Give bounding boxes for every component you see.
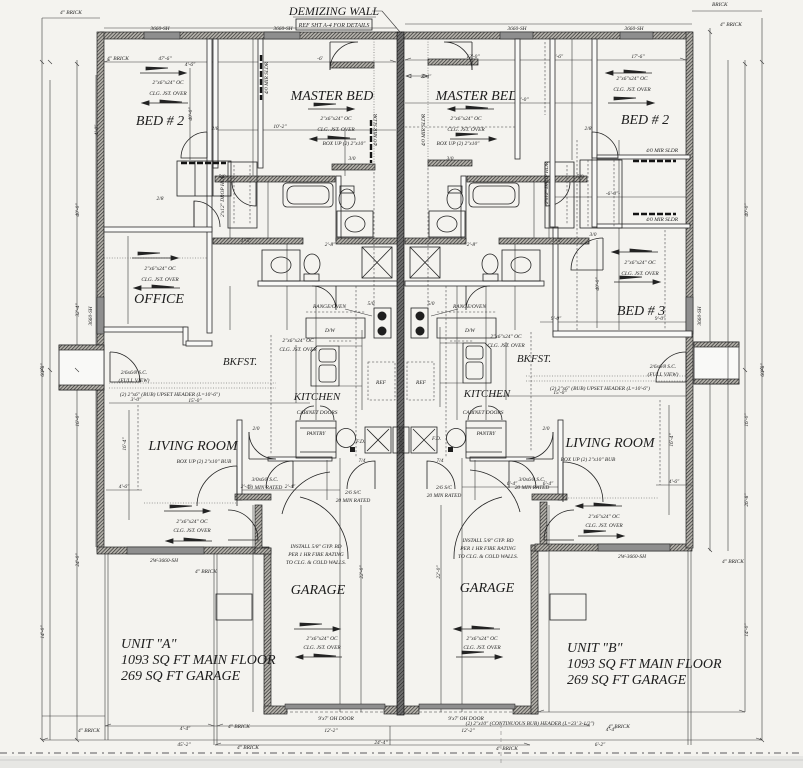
svg-text:F.D.: F.D. xyxy=(431,436,441,442)
svg-text:22'-0": 22'-0" xyxy=(436,565,442,579)
svg-text:INSTALL 5/8" GYP. BD: INSTALL 5/8" GYP. BD xyxy=(289,544,341,550)
svg-text:4" BRICK: 4" BRICK xyxy=(496,746,518,752)
svg-text:3/0x6/8 S.C.: 3/0x6/8 S.C. xyxy=(518,477,546,483)
svg-text:CLG. JST. OVER: CLG. JST. OVER xyxy=(149,91,187,97)
svg-text:CLG. JST. OVER: CLG. JST. OVER xyxy=(279,347,317,353)
svg-text:2"x6"x24" OC: 2"x6"x24" OC xyxy=(144,266,176,272)
svg-text:24'-4": 24'-4" xyxy=(374,740,388,746)
svg-text:BRICK: BRICK xyxy=(712,2,728,8)
svg-text:4" BRICK: 4" BRICK xyxy=(195,569,217,575)
svg-text:15'-0": 15'-0" xyxy=(188,398,202,404)
svg-text:16'-0": 16'-0" xyxy=(744,413,750,427)
svg-text:REF: REF xyxy=(375,380,387,386)
svg-text:D/W: D/W xyxy=(324,328,335,334)
svg-text:4" BRICK: 4" BRICK xyxy=(60,10,82,16)
svg-text:INSTALL 5/8" GYP. BD: INSTALL 5/8" GYP. BD xyxy=(461,538,513,544)
svg-text:14'-0": 14'-0" xyxy=(40,625,46,639)
svg-text:2'-4": 2'-4" xyxy=(241,484,252,490)
svg-text:2W-3660-SH: 2W-3660-SH xyxy=(150,558,179,564)
svg-text:KITCHEN: KITCHEN xyxy=(293,391,341,403)
svg-text:269 SQ FT GARAGE: 269 SQ FT GARAGE xyxy=(121,669,241,684)
svg-text:2"x6"x24" OC: 2"x6"x24" OC xyxy=(320,116,352,122)
svg-text:2"x6"x24" OC: 2"x6"x24" OC xyxy=(624,260,656,266)
svg-text:60'-8": 60'-8" xyxy=(40,363,46,377)
svg-text:4'-4": 4'-4" xyxy=(180,726,191,732)
svg-text:2/6x6/8 S.C.: 2/6x6/8 S.C. xyxy=(121,370,148,376)
svg-text:3/0x6/8 S.C.: 3/0x6/8 S.C. xyxy=(251,477,279,483)
svg-text:2'-4": 2'-4" xyxy=(285,484,296,490)
svg-text:PER 1 HR FIRE RATING: PER 1 HR FIRE RATING xyxy=(459,546,516,552)
svg-text:2"x6"x24" OC: 2"x6"x24" OC xyxy=(616,76,648,82)
svg-text:(FULL VIEW): (FULL VIEW) xyxy=(119,377,150,384)
svg-text:4'-6": 4'-6" xyxy=(185,62,196,68)
svg-text:2/8: 2/8 xyxy=(157,196,164,202)
svg-text:2'x12" DROP HDR: 2'x12" DROP HDR xyxy=(544,161,550,204)
svg-text:BED # 2: BED # 2 xyxy=(136,114,184,129)
svg-text:4" BRICK: 4" BRICK xyxy=(78,728,100,734)
svg-text:4/0 MIR SLDR: 4/0 MIR SLDR xyxy=(264,61,270,94)
svg-text:TO CLG. & COLD WALLS.: TO CLG. & COLD WALLS. xyxy=(458,554,518,560)
svg-text:2"x6"x24" OC: 2"x6"x24" OC xyxy=(306,636,338,642)
svg-text:3660-SH: 3660-SH xyxy=(272,26,293,32)
svg-text:2"x6"x24" OC: 2"x6"x24" OC xyxy=(282,338,314,344)
svg-text:14'-0": 14'-0" xyxy=(744,623,750,637)
svg-text:BOX UP (2) 2"x10": BOX UP (2) 2"x10" xyxy=(437,140,481,147)
svg-text:GARAGE: GARAGE xyxy=(291,583,346,598)
svg-text:UNIT "B": UNIT "B" xyxy=(567,641,623,656)
svg-text:5/0: 5/0 xyxy=(368,301,375,307)
svg-text:40'-0": 40'-0" xyxy=(75,203,81,217)
svg-text:(2) 2"x10" (CONTINUOUS BUB) HE: (2) 2"x10" (CONTINUOUS BUB) HEADER (L=23… xyxy=(466,720,595,727)
svg-text:GARAGE: GARAGE xyxy=(460,581,515,596)
svg-text:CLG. JST. OVER: CLG. JST. OVER xyxy=(585,523,623,529)
svg-text:32'-4": 32'-4" xyxy=(75,303,81,318)
svg-text:2'-4": 2'-4" xyxy=(421,74,432,80)
svg-text:4'-0": 4'-0" xyxy=(94,124,100,135)
svg-text:4" BRICK: 4" BRICK xyxy=(228,724,250,730)
svg-text:CLG. JST. OVER: CLG. JST. OVER xyxy=(487,343,525,349)
svg-text:4/0 MIR SLDR: 4/0 MIR SLDR xyxy=(646,217,679,223)
svg-text:17'-6": 17'-6" xyxy=(631,54,645,60)
svg-text:16'-4": 16'-4" xyxy=(122,437,128,451)
svg-text:BKFST.: BKFST. xyxy=(223,356,257,368)
svg-text:1093 SQ FT MAIN FLOOR: 1093 SQ FT MAIN FLOOR xyxy=(567,657,722,672)
svg-text:2/0: 2/0 xyxy=(253,426,260,432)
svg-text:2/6 S/C: 2/6 S/C xyxy=(345,490,361,496)
svg-text:3/0: 3/0 xyxy=(348,156,356,162)
svg-text:3660-SH: 3660-SH xyxy=(149,26,170,32)
svg-text:CLG. JST. OVER: CLG. JST. OVER xyxy=(303,645,341,651)
svg-text:12'-0": 12'-0" xyxy=(466,54,480,60)
svg-text:D/W: D/W xyxy=(464,328,475,334)
svg-text:3660-SH: 3660-SH xyxy=(623,26,644,32)
svg-text:4/0 MIR SLDR: 4/0 MIR SLDR xyxy=(421,113,427,146)
svg-text:1'-5": 1'-5" xyxy=(241,238,252,244)
svg-text:RANGE/OVEN: RANGE/OVEN xyxy=(312,304,346,310)
svg-text:BED # 2: BED # 2 xyxy=(621,113,669,128)
svg-text:CLG. JST. OVER: CLG. JST. OVER xyxy=(141,277,179,283)
svg-text:(FULL VIEW): (FULL VIEW) xyxy=(648,371,679,378)
svg-text:2/6x6/8 S.C.: 2/6x6/8 S.C. xyxy=(650,364,677,370)
svg-text:3660-SH: 3660-SH xyxy=(697,305,703,326)
svg-text:PANTRY: PANTRY xyxy=(476,431,497,437)
svg-text:BOX UP (2) 2"x10": BOX UP (2) 2"x10" xyxy=(323,140,367,147)
svg-text:4" BRICK: 4" BRICK xyxy=(237,745,259,751)
svg-text:CLG. JST. OVER: CLG. JST. OVER xyxy=(317,127,355,133)
svg-text:2"x6"x24" OC: 2"x6"x24" OC xyxy=(152,80,184,86)
svg-text:269 SQ FT GARAGE: 269 SQ FT GARAGE xyxy=(567,673,687,688)
svg-text:26'-8": 26'-8" xyxy=(744,493,750,507)
svg-text:24'-0": 24'-0" xyxy=(75,553,81,567)
svg-text:47'-6": 47'-6" xyxy=(158,56,172,62)
svg-text:LIVING ROOM: LIVING ROOM xyxy=(564,436,655,451)
svg-text:2"x6"x24" OC: 2"x6"x24" OC xyxy=(588,514,620,520)
svg-text:6'-4": 6'-4" xyxy=(543,481,554,487)
svg-text:2'x12" DROP HDR: 2'x12" DROP HDR xyxy=(220,174,226,217)
svg-text:5/0: 5/0 xyxy=(428,301,435,307)
svg-text:4" BRICK: 4" BRICK xyxy=(720,22,742,28)
svg-text:16'-4": 16'-4" xyxy=(669,433,675,447)
svg-text:4'-6": 4'-6" xyxy=(119,484,130,490)
svg-text:F.D.: F.D. xyxy=(355,439,365,445)
svg-text:TO CLG. & COLD WALLS.: TO CLG. & COLD WALLS. xyxy=(286,560,346,566)
svg-text:12'-2": 12'-2" xyxy=(461,728,475,734)
svg-text:4" BRICK: 4" BRICK xyxy=(722,559,744,565)
svg-text:BOX UP (2) 2"x10" BUB: BOX UP (2) 2"x10" BUB xyxy=(177,458,232,465)
svg-text:3660-SH: 3660-SH xyxy=(506,26,527,32)
svg-text:2/8: 2/8 xyxy=(212,126,219,132)
svg-text:-6': -6' xyxy=(317,56,323,62)
svg-text:BOX UP (2) 2"x10" BUB: BOX UP (2) 2"x10" BUB xyxy=(561,456,616,463)
svg-text:9'-0": 9'-0" xyxy=(655,316,666,322)
svg-text:CLG. JST. OVER: CLG. JST. OVER xyxy=(463,645,501,651)
svg-text:6'-2": 6'-2" xyxy=(595,742,606,748)
svg-text:40'-0": 40'-0" xyxy=(595,277,601,291)
svg-text:MASTER BED: MASTER BED xyxy=(290,89,374,104)
svg-text:10'-2": 10'-2" xyxy=(273,124,287,130)
svg-text:3660-SH: 3660-SH xyxy=(88,305,94,326)
svg-text:20 MIN RATED: 20 MIN RATED xyxy=(427,493,462,499)
svg-text:2/6 S/C: 2/6 S/C xyxy=(436,485,452,491)
svg-text:REF: REF xyxy=(415,380,427,386)
svg-text:CABINET DOORS: CABINET DOORS xyxy=(297,410,338,416)
svg-text:45'-2": 45'-2" xyxy=(177,742,191,748)
svg-text:PANTRY: PANTRY xyxy=(306,431,327,437)
svg-text:BKFST.: BKFST. xyxy=(517,353,551,365)
svg-text:2'-8": 2'-8" xyxy=(325,242,336,248)
svg-text:-6'-0"-: -6'-0"- xyxy=(606,191,620,197)
svg-text:4'-4": 4'-4" xyxy=(606,727,617,733)
svg-text:40'-0": 40'-0" xyxy=(744,203,750,217)
svg-text:60'-8": 60'-8" xyxy=(760,363,766,377)
svg-text:16'-0": 16'-0" xyxy=(75,413,81,427)
svg-text:4/0 MIR SLDR: 4/0 MIR SLDR xyxy=(646,148,679,154)
svg-text:DEMIZING WALL: DEMIZING WALL xyxy=(288,4,379,18)
svg-text:2"x6"x24" OC: 2"x6"x24" OC xyxy=(450,116,482,122)
svg-text:15'-0": 15'-0" xyxy=(553,390,567,396)
svg-text:2/8: 2/8 xyxy=(585,126,592,132)
svg-text:MASTER BED: MASTER BED xyxy=(435,89,519,104)
svg-text:20 MIN RATED: 20 MIN RATED xyxy=(336,498,371,504)
svg-text:REF SHT A-4 FOR DETAILS: REF SHT A-4 FOR DETAILS xyxy=(298,22,370,29)
svg-text:4" BRICK: 4" BRICK xyxy=(107,56,129,62)
svg-text:2"x6"x24" OC: 2"x6"x24" OC xyxy=(490,334,522,340)
svg-text:CLG. JST. OVER: CLG. JST. OVER xyxy=(173,528,211,534)
svg-text:OFFICE: OFFICE xyxy=(134,292,184,307)
svg-text:4'-6": 4'-6" xyxy=(669,479,680,485)
svg-text:PER 1 HR FIRE RATING: PER 1 HR FIRE RATING xyxy=(287,552,344,558)
svg-text:1'-5": 1'-5" xyxy=(552,238,563,244)
svg-text:2'-8": 2'-8" xyxy=(467,242,478,248)
svg-text:6'-4": 6'-4" xyxy=(507,481,518,487)
svg-text:2/0: 2/0 xyxy=(543,426,550,432)
svg-text:40'-0": 40'-0" xyxy=(188,107,194,121)
svg-text:22'-0": 22'-0" xyxy=(359,565,365,579)
svg-text:CLG. JST. OVER: CLG. JST. OVER xyxy=(613,87,651,93)
svg-text:9'x7' OH DOOR: 9'x7' OH DOOR xyxy=(318,716,354,722)
svg-text:3/0: 3/0 xyxy=(589,232,597,238)
svg-text:UNIT "A": UNIT "A" xyxy=(121,637,177,652)
svg-text:12'-2": 12'-2" xyxy=(324,728,338,734)
svg-text:9'-0": 9'-0" xyxy=(551,316,562,322)
svg-text:20 MIN RATED: 20 MIN RATED xyxy=(248,485,283,491)
svg-text:5/0: 5/0 xyxy=(577,174,584,180)
svg-text:3'-0": 3'-0" xyxy=(130,397,142,403)
svg-text:CLG. JST. OVER: CLG. JST. OVER xyxy=(447,127,485,133)
svg-text:4/0 MIR SLDR: 4/0 MIR SLDR xyxy=(373,113,379,146)
svg-text:KITCHEN: KITCHEN xyxy=(463,388,511,400)
svg-text:2"x6"x24" OC: 2"x6"x24" OC xyxy=(466,636,498,642)
svg-text:2"x6"x24" OC: 2"x6"x24" OC xyxy=(176,519,208,525)
svg-text:LIVING ROOM: LIVING ROOM xyxy=(147,439,238,454)
svg-text:2W-3660-SH: 2W-3660-SH xyxy=(618,554,647,560)
